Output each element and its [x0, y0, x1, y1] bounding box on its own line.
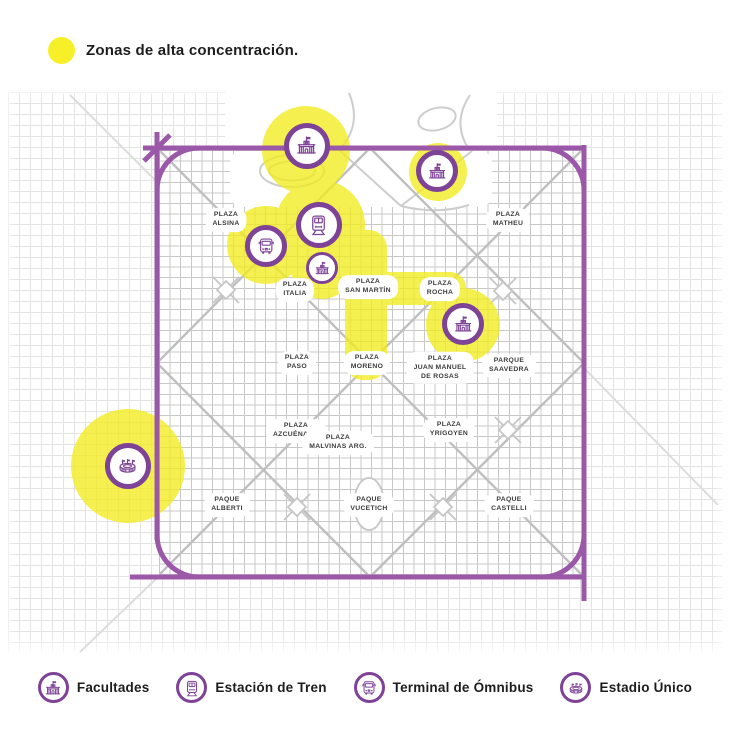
facultades-icon	[38, 672, 69, 703]
estacion-tren-icon	[176, 672, 207, 703]
grid-fade-top	[0, 86, 730, 98]
grid-fade-bottom	[0, 636, 730, 656]
grid-fade-left	[0, 86, 16, 656]
poi-legend: Facultades Estación de Tren Terminal de …	[0, 672, 730, 703]
legend-item: Estadio Único	[560, 672, 692, 703]
yellow-zone-dot-icon	[48, 37, 75, 64]
legend-item: Facultades	[38, 672, 150, 703]
legend-label: Estación de Tren	[215, 680, 326, 695]
zones-legend: Zonas de alta concentración.	[48, 37, 298, 64]
legend-item: Estación de Tren	[176, 672, 326, 703]
infographic-root: { "colors": { "zone_yellow": "#F2EC1E", …	[0, 0, 730, 730]
legend-label: Estadio Único	[599, 680, 692, 695]
terminal-omnibus-icon	[354, 672, 385, 703]
legend-label: Facultades	[77, 680, 150, 695]
zones-legend-label: Zonas de alta concentración.	[86, 42, 298, 59]
city-square-street-grid	[159, 150, 583, 576]
legend-item: Terminal de Ómnibus	[354, 672, 534, 703]
estadio-unico-icon	[560, 672, 591, 703]
legend-label: Terminal de Ómnibus	[393, 680, 534, 695]
grid-fade-right	[712, 86, 730, 656]
